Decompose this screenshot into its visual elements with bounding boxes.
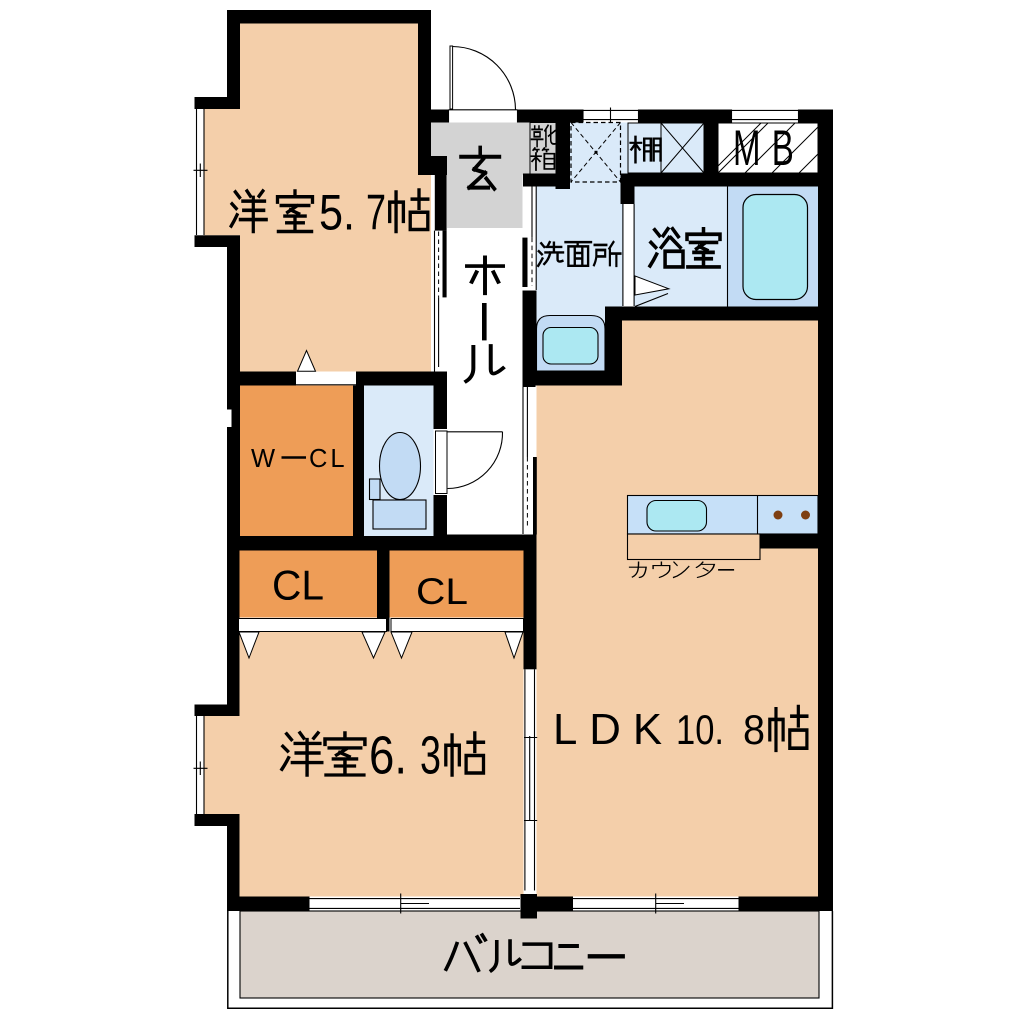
svg-text:W: W — [251, 445, 275, 473]
svg-text:5.: 5. — [319, 185, 355, 241]
svg-text:6.: 6. — [369, 726, 407, 786]
svg-text:LDK: LDK — [553, 705, 674, 754]
svg-text:7: 7 — [366, 185, 386, 241]
svg-text:CL: CL — [416, 571, 468, 612]
svg-text:10.: 10. — [676, 706, 724, 753]
svg-text:3: 3 — [420, 726, 441, 786]
svg-text:8: 8 — [743, 706, 765, 753]
svg-text:CL: CL — [309, 445, 348, 473]
svg-text:CL: CL — [272, 562, 324, 609]
svg-text:MB: MB — [733, 120, 805, 176]
